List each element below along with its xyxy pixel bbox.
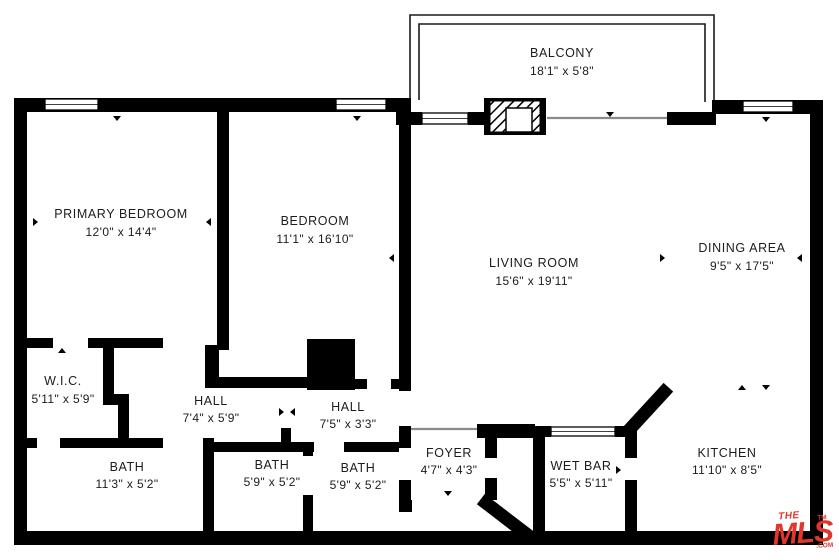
room-label-foyer: FOYER (426, 446, 472, 460)
room-dims-foyer: 4'7" x 4'3" (421, 463, 478, 477)
room-dims-dining-area: 9'5" x 17'5" (710, 259, 774, 273)
room-label-balcony: BALCONY (530, 46, 594, 60)
room-label-kitchen: KITCHEN (697, 446, 756, 460)
floor-plan-drawing: BALCONY 18'1" x 5'8" PRIMARY BEDROOM 12'… (0, 0, 839, 560)
room-label-dining-area: DINING AREA (698, 241, 785, 255)
window-living-room (422, 113, 468, 124)
room-dims-living-room: 15'6" x 19'11" (495, 274, 572, 288)
room-label-wic: W.I.C. (44, 374, 82, 388)
room-dims-hall-2: 7'5" x 3'3" (320, 417, 377, 431)
floor-plan-page: BALCONY 18'1" x 5'8" PRIMARY BEDROOM 12'… (0, 0, 839, 560)
room-dims-bath-1: 11'3" x 5'2" (95, 477, 158, 491)
room-label-bath-2: BATH (255, 458, 290, 472)
room-dims-primary-bedroom: 12'0" x 14'4" (85, 225, 156, 239)
mls-logo: THE MLS TM .COM (771, 508, 835, 553)
fireplace (484, 98, 546, 135)
room-dims-wet-bar: 5'5" x 5'11" (549, 476, 612, 490)
room-label-wet-bar: WET BAR (551, 459, 612, 473)
mls-logo-tm: TM (817, 514, 827, 522)
wet-bar-passthrough (551, 427, 615, 436)
room-label-bath-1: BATH (110, 460, 145, 474)
room-label-primary-bedroom: PRIMARY BEDROOM (54, 207, 188, 221)
room-dims-hall-1: 7'4" x 5'9" (183, 411, 240, 425)
mls-logo-tld: .COM (816, 542, 833, 550)
window-bedroom (336, 99, 386, 110)
windows (45, 99, 793, 436)
room-dims-bedroom: 11'1" x 16'10" (276, 232, 353, 246)
room-label-bath-3: BATH (341, 461, 376, 475)
room-dims-wic: 5'11" x 5'9" (31, 392, 94, 406)
room-dims-kitchen: 11'10" x 8'5" (692, 463, 762, 477)
room-dims-bath-2: 5'9" x 5'2" (244, 475, 301, 489)
room-label-living-room: LIVING ROOM (489, 256, 579, 270)
room-label-bedroom: BEDROOM (281, 214, 350, 228)
room-dims-balcony: 18'1" x 5'8" (530, 64, 594, 78)
room-dims-bath-3: 5'9" x 5'2" (330, 478, 387, 492)
room-label-hall-1: HALL (194, 394, 228, 408)
room-label-hall-2: HALL (331, 400, 365, 414)
window-primary-bedroom (45, 99, 98, 110)
window-dining-area (743, 101, 793, 112)
